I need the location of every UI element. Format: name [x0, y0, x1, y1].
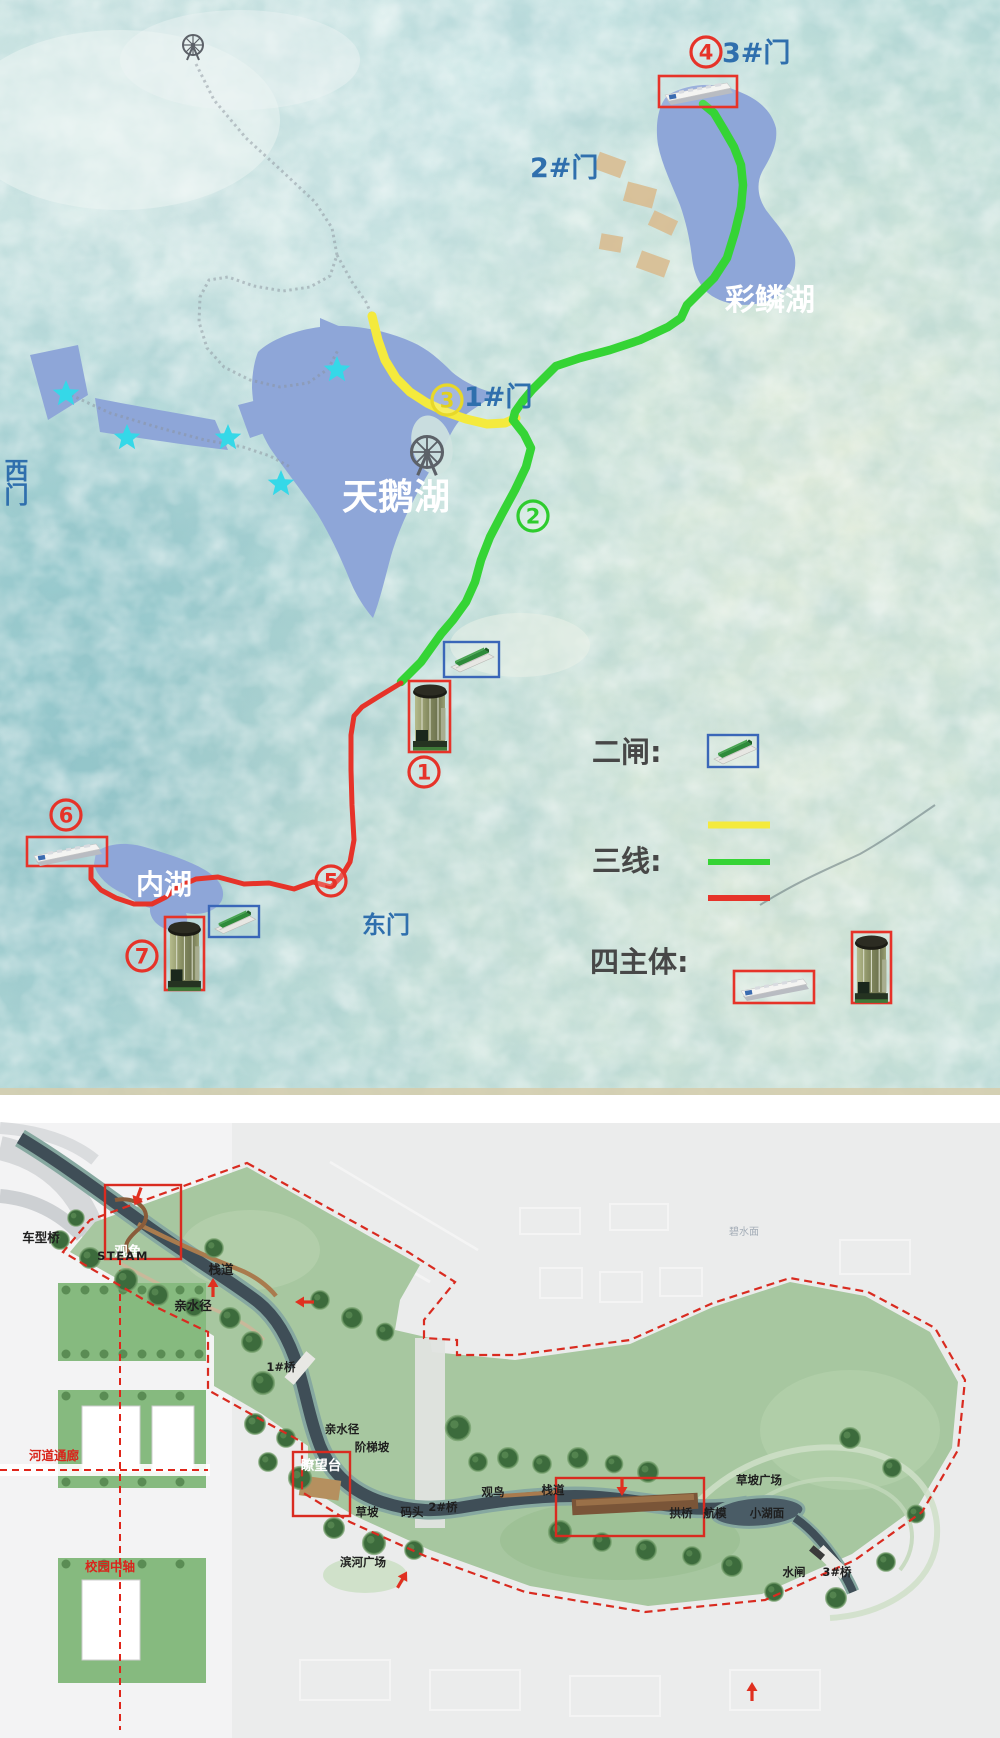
marker-1: 1 — [409, 757, 439, 787]
campus-building — [82, 1580, 140, 1660]
map-canvas: 二闸: 三线: 四主体: 1 2 3 — [0, 0, 1000, 1738]
marker-3: 3 — [432, 385, 462, 415]
marker-6: 6 — [51, 800, 81, 830]
label-small-lake: 小湖面 — [749, 1506, 785, 1520]
marker-5-num: 5 — [324, 870, 339, 894]
marker-6-num: 6 — [59, 804, 74, 828]
boat-box-gate3 — [659, 76, 737, 107]
label-bridge-1: 1#桥 — [266, 1360, 296, 1374]
label-boardwalk-b: 栈道 — [542, 1483, 565, 1497]
marker-2: 2 — [518, 501, 548, 531]
label-model-boats: 航模 — [704, 1506, 727, 1520]
label-boardwalk-a: 栈道 — [208, 1262, 234, 1277]
marker-4-num: 4 — [699, 41, 714, 65]
legend-lines-label: 三线: — [592, 844, 662, 878]
east-gate-label: 东门 — [362, 911, 410, 939]
label-grass-plaza: 草坡广场 — [736, 1473, 782, 1487]
label-waterside-path-b: 亲水径 — [325, 1422, 360, 1436]
label-wharf: 码头 — [401, 1505, 424, 1519]
label-bridge-2: 2#桥 — [428, 1500, 458, 1514]
label-riverside-plaza: 滨河广场 — [340, 1555, 386, 1569]
campus-road — [0, 1464, 210, 1476]
tower-box-1 — [409, 681, 450, 752]
label-water-gate: 水闸 — [783, 1565, 806, 1579]
legend-sluice-box — [708, 735, 758, 767]
campus-building — [152, 1406, 194, 1472]
label-waterside-path-a: 亲水径 — [174, 1298, 212, 1313]
campus-water-plan-page: 二闸: 三线: 四主体: 1 2 3 — [0, 0, 1000, 1738]
bottom-map: 车型桥 观鱼 栈道 亲水径 STEAM 1#桥 亲水径 阶梯坡 瞭望台 草坡 码… — [0, 1123, 1000, 1738]
legend-bodies-label: 四主体: — [590, 945, 689, 979]
sluice-box-7 — [209, 906, 259, 937]
gate3-label: 3#门 — [722, 38, 790, 69]
label-lookout: 瞭望台 — [301, 1457, 342, 1474]
label-river-corridor: 河道通廊 — [29, 1448, 80, 1463]
pump-tower-icon — [855, 936, 888, 1003]
maps-divider-gap — [0, 1095, 1000, 1123]
gate2-label: 2#门 — [530, 153, 598, 184]
aerial-bottom-strip — [0, 1088, 1000, 1095]
legend-gates-label: 二闸: — [592, 735, 662, 769]
legend-boat-box — [734, 971, 814, 1003]
boat-box-6 — [27, 837, 107, 866]
label-bridge-3: 3#桥 — [822, 1565, 852, 1579]
label-step-slope: 阶梯坡 — [355, 1440, 390, 1454]
label-clear-water: 碧水面 — [729, 1226, 759, 1238]
marker-7: 7 — [127, 941, 157, 971]
marker-4: 4 — [691, 37, 721, 67]
campus-building — [82, 1406, 140, 1472]
swan-lake-label: 天鹅湖 — [342, 477, 450, 518]
cailin-lake-label: 彩鳞湖 — [725, 283, 815, 318]
top-map: 二闸: 三线: 四主体: 1 2 3 — [0, 0, 1000, 1095]
west-gate-label: 西门 — [0, 458, 28, 507]
gate1-label: 1#门 — [464, 382, 532, 413]
marker-1-num: 1 — [417, 761, 432, 785]
label-grass-slope: 草坡 — [356, 1505, 379, 1519]
campus-blocks — [58, 1283, 206, 1683]
tower-box-7 — [165, 917, 204, 991]
sluice-box-1 — [444, 642, 499, 677]
pump-tower-icon — [413, 685, 447, 751]
marker-5: 5 — [316, 866, 346, 896]
pump-tower-icon — [168, 922, 201, 991]
marker-2-num: 2 — [526, 505, 541, 529]
label-bird-watching: 观鸟 — [482, 1485, 505, 1499]
lawn-patch — [180, 1210, 320, 1290]
label-steam: STEAM — [97, 1249, 149, 1263]
marker-3-num: 3 — [440, 389, 455, 413]
inner-lake-label: 内湖 — [136, 868, 192, 901]
label-vehicle-bridge: 车型桥 — [22, 1230, 60, 1245]
legend-tower-box — [852, 932, 891, 1003]
label-campus-axis: 校园中轴 — [85, 1559, 135, 1574]
label-arch-bridge: 拱桥 — [670, 1506, 693, 1520]
marker-7-num: 7 — [135, 945, 150, 969]
